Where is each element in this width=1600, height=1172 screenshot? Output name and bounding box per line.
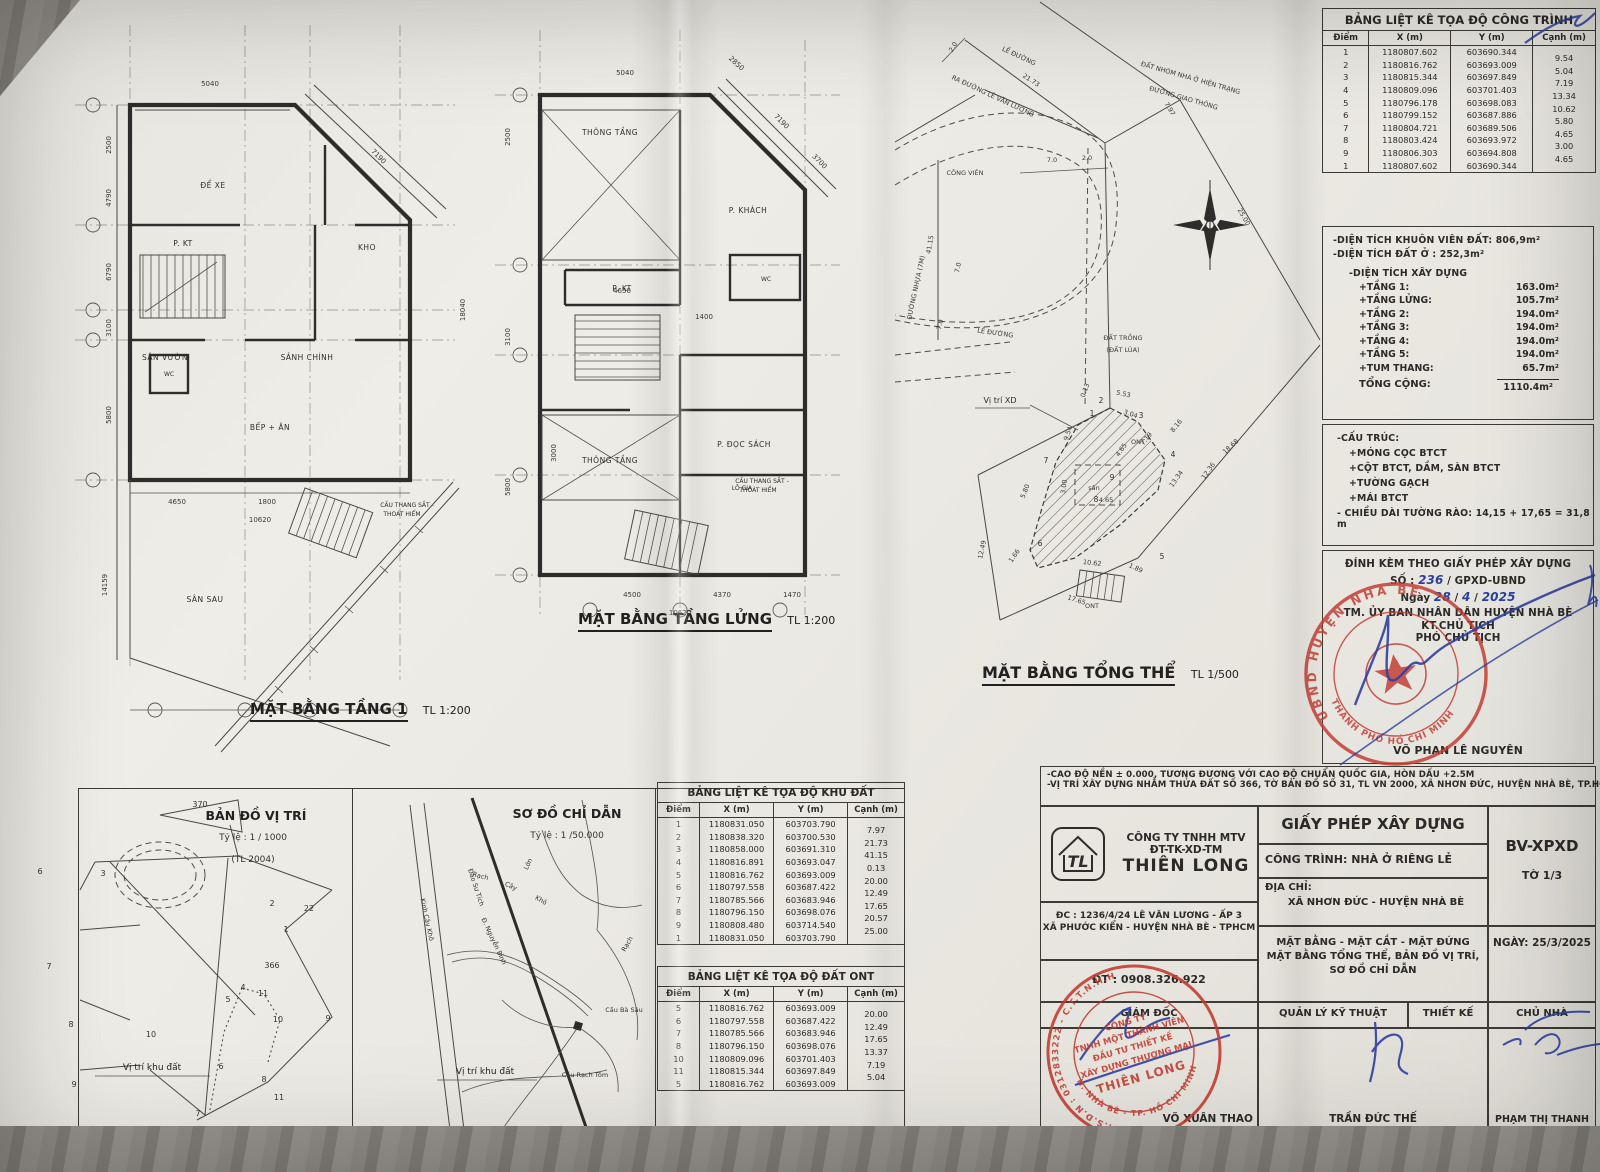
dim-label: 13.34	[1168, 469, 1185, 489]
structure-line: +CỘT BTCT, DẦM, SÀN BTCT	[1349, 463, 1593, 474]
room-label: KHO	[358, 243, 376, 252]
dim-label: 2850	[727, 55, 746, 73]
parcel-number: 10	[146, 1030, 156, 1039]
khudat-table: ĐiểmX (m)Y (m)Cạnh (m)11180831.050603703…	[657, 802, 905, 945]
column-header: Cạnh (m)	[848, 987, 905, 1002]
stair-note: THOÁT HIỂM	[382, 510, 420, 518]
director-role-cell: GIÁM ĐỐC	[1040, 1002, 1258, 1028]
company-address-cell: ĐC : 1236/4/24 LÊ VĂN LƯƠNG - ẤP 3 XÃ PH…	[1040, 902, 1258, 960]
plan-title-text: MẶT BẰNG TẦNG LỬNG	[578, 610, 772, 632]
dim-label: 41.15	[924, 235, 935, 255]
plan-title-text: MẶT BẰNG TẦNG 1	[250, 700, 408, 722]
dim-label: 1800	[258, 498, 276, 506]
parcel-number: 7	[195, 1109, 200, 1118]
road-name: Lớn	[522, 857, 534, 871]
parcel-number: 3	[100, 869, 105, 878]
map-scale: Tỷ lệ : 1 / 1000	[218, 832, 287, 843]
room-label: SẢNH CHÍNH	[281, 353, 334, 362]
signer-name: PHẠM THỊ THANH	[1489, 1114, 1595, 1125]
company-logo: TL	[1049, 825, 1107, 883]
map-title: BẢN ĐỒ VỊ TRÍ	[206, 806, 307, 823]
dim-label: 21.73	[1021, 72, 1041, 89]
plan-scale: TL 1/500	[1191, 668, 1239, 681]
axis-bubbles	[86, 98, 407, 717]
parcel-number: 11	[258, 989, 268, 998]
grid-lines	[495, 30, 840, 615]
parcel-number: 4	[240, 983, 245, 992]
column-header: Cạnh (m)	[1533, 31, 1596, 46]
site-label: ĐƯỜNG GIAO THÔNG	[1148, 84, 1219, 112]
area-item: +TẦNG 1:163.0m²	[1359, 282, 1593, 293]
column-header: Cạnh (m)	[848, 803, 905, 818]
structure-line: +MÓNG CỌC BTCT	[1349, 448, 1593, 459]
road-name: Cây	[504, 880, 519, 893]
structure-line: +MÁI BTCT	[1349, 493, 1593, 504]
column-header: Điểm	[658, 987, 700, 1002]
permit-line: KT.CHỦ TỊCH	[1323, 620, 1593, 632]
room-label: P. KHÁCH	[729, 206, 768, 215]
map-label: Vị trí khu đất	[123, 1062, 182, 1073]
area-line: -DIỆN TÍCH KHUÔN VIÊN ĐẤT: 806,9m²	[1333, 235, 1593, 246]
parcel-number: 9	[71, 1080, 76, 1089]
signer-name: TRẦN ĐỨC THẾ	[1259, 1113, 1487, 1125]
stair-note: CẦU THANG SẮT -	[735, 477, 789, 485]
dim-label: 7.0	[953, 262, 963, 274]
road-name: Kinh Cây Khô	[419, 898, 436, 942]
point-number: 8	[1094, 495, 1099, 504]
structure-line: +TƯỜNG GẠCH	[1349, 478, 1593, 489]
column-header: Điểm	[1323, 31, 1369, 46]
address-cell: ĐỊA CHỈ: XÃ NHƠN ĐỨC - HUYỆN NHÀ BÈ	[1258, 878, 1488, 926]
area-item: +TẦNG 4:194.0m²	[1359, 336, 1593, 347]
table-row: 51180816.762603693.00920.00	[658, 1002, 905, 1015]
parcel-number: 10	[273, 1015, 283, 1024]
map-note: (TL 2004)	[231, 855, 274, 865]
walls	[130, 85, 446, 558]
area-line: -DIỆN TÍCH ĐẤT Ở : 252,3m²	[1333, 249, 1593, 260]
dim-label: 7.0	[1047, 156, 1057, 164]
company-address: XÃ PHƯỚC KIỂN - HUYỆN NHÀ BÈ - TPHCM	[1041, 923, 1257, 933]
dim-label: 5040	[616, 69, 634, 77]
point-number: 2	[1099, 396, 1104, 405]
site-label: LỀ ĐƯỜNG	[977, 325, 1014, 340]
dim-label: 1470	[783, 591, 801, 599]
dim-label: 1.89	[1128, 562, 1145, 575]
ont-table-panel: BẢNG LIỆT KÊ TỌA ĐỘ ĐẤT ONT ĐiểmX (m)Y (…	[657, 966, 905, 1091]
company-name-line: CÔNG TY TNHH MTV	[1115, 832, 1257, 844]
dim-label: 3700	[810, 152, 828, 170]
site-label: ĐẤT TRỒNG	[1103, 332, 1142, 342]
room-label: THÔNG TẦNG	[581, 127, 638, 137]
column-header: X (m)	[1369, 31, 1451, 46]
permit-attachment-panel: ĐÍNH KÈM THEO GIẤY PHÉP XÂY DỰNG SỐ : 23…	[1322, 550, 1594, 764]
dim-label: 12.36	[1200, 461, 1217, 481]
dim-label: 4370	[713, 591, 731, 599]
site-label: ONT	[1085, 602, 1099, 610]
site-plan-drawing: LỀ ĐƯỜNG RA ĐƯỜNG LÊ VĂN LƯƠNG CÔNG VIÊN…	[880, 10, 1330, 655]
dim-label: 12.49	[976, 540, 988, 560]
sheet-number: TỜ 1/3	[1489, 869, 1595, 882]
parcel-number: 1	[283, 925, 288, 934]
date-cell: NGÀY: 25/3/2025	[1488, 926, 1596, 1002]
dim-label: 4790	[105, 189, 113, 207]
khudat-table-panel: BẢNG LIỆT KÊ TỌA ĐỘ KHU ĐẤT ĐiểmX (m)Y (…	[657, 782, 905, 945]
road-name: Rạch	[620, 935, 635, 953]
parcel-number: 22	[304, 904, 314, 913]
permit-line: PHÓ CHỦ TỊCH	[1323, 632, 1593, 644]
dim-label: 5040	[201, 80, 219, 88]
area-item: +TẦNG 2:194.0m²	[1359, 309, 1593, 320]
company-phone-cell: ĐT : 0908.326.922	[1040, 960, 1258, 1002]
plan-scale: TL 1:200	[787, 614, 835, 627]
walls	[540, 79, 836, 575]
owner-role-cell: CHỦ NHÀ	[1488, 1002, 1596, 1028]
site-label: sân	[1088, 484, 1100, 492]
table-title: BẢNG LIỆT KÊ TỌA ĐỘ ĐẤT ONT	[657, 966, 905, 986]
area-header: -DIỆN TÍCH XÂY DỰNG	[1349, 268, 1593, 279]
floor-strip	[0, 1126, 1600, 1172]
dim-label: 6790	[105, 263, 113, 281]
point-number: 1	[1090, 409, 1095, 418]
plan-scale: TL 1:200	[423, 704, 471, 717]
dim-label: 2.0	[1082, 154, 1092, 162]
site-label: CÔNG VIÊN	[947, 168, 984, 177]
dim-label: 5.80	[1019, 483, 1032, 499]
areas-panel: -DIỆN TÍCH KHUÔN VIÊN ĐẤT: 806,9m² -DIỆN…	[1322, 226, 1594, 420]
structure-panel: -CẤU TRÚC: +MÓNG CỌC BTCT +CỘT BTCT, DẦM…	[1322, 424, 1594, 546]
dim-label: 10620	[249, 516, 271, 524]
dim-label: 10.62	[1083, 558, 1102, 568]
location-map: BẢN ĐỒ VỊ TRÍ Tỷ lệ : 1 / 1000 (TL 2004)…	[0, 770, 348, 1132]
stair-note: CẦU THANG SẮT -	[380, 501, 434, 509]
company-brand: THIÊN LONG	[1115, 856, 1257, 876]
dim-label: 5.53	[1116, 389, 1132, 400]
congtrinh-table-panel: BẢNG LIỆT KÊ TỌA ĐỘ CÔNG TRÌNH ĐiểmX (m)…	[1322, 8, 1596, 173]
handwritten-number: 4	[1462, 590, 1470, 604]
area-item: +TẦNG 5:194.0m²	[1359, 349, 1593, 360]
dim-label: 3100	[504, 328, 512, 346]
floor1-plan-drawing: 5040 7190 4650 1800 10620 14159 2500 479…	[55, 10, 475, 750]
map-title: SƠ ĐỒ CHỈ DẪN	[513, 804, 622, 821]
stair-note: THOÁT HIỂM	[738, 486, 776, 494]
map-titles: SƠ ĐỒ CHỈ DẪN Tỷ lệ : 1 /50.000 Vị trí k…	[456, 804, 622, 1077]
parcel-number: 7	[46, 962, 51, 971]
signer-name: VÕ XUÂN THAO	[1041, 1113, 1253, 1125]
tech-manager-role-cell: QUẢN LÝ KỸ THUẬT	[1258, 1002, 1408, 1028]
room-label: BẾP + ĂN	[250, 422, 290, 432]
column-header: Y (m)	[774, 987, 848, 1002]
company-cell: TL CÔNG TY TNHH MTV ĐT-TK-XD-TM THIÊN LO…	[1040, 806, 1258, 902]
parcel-number: 366	[264, 961, 279, 970]
map-lines	[80, 800, 332, 1120]
floor1-plan-title: MẶT BẰNG TẦNG 1 TL 1:200	[250, 700, 471, 718]
room-label: WC	[761, 276, 771, 283]
room-labels: THÔNG TẦNG P. KHÁCH P. KT WC THÔNG TẦNG …	[581, 127, 789, 494]
signer-name: VÕ PHAN LÊ NGUYÊN	[1323, 744, 1593, 757]
area-total: TỔNG CỘNG: 1110.4m²	[1359, 379, 1593, 393]
handwritten-number: 236	[1418, 573, 1443, 587]
project-cell: CÔNG TRÌNH: NHÀ Ở RIÊNG LẺ	[1258, 844, 1488, 878]
sheet-code: BV-XPXD	[1489, 837, 1595, 855]
logo-monogram: TL	[1067, 852, 1088, 871]
room-label: P. ĐỌC SÁCH	[717, 440, 771, 449]
map-scale: Tỷ lệ : 1 /50.000	[529, 830, 604, 841]
dimension-labels: 5040 2850 7190 3700 4650 1400 3000 2500 …	[504, 55, 829, 617]
area-item: +TUM THANG:65.7m²	[1359, 363, 1593, 374]
axis-bubbles	[513, 88, 787, 617]
parcel-number: 2	[269, 899, 274, 908]
dim-label: 8.16	[1169, 418, 1184, 434]
dim-label: 2500	[504, 128, 512, 146]
area-item: +TẦNG 3:194.0m²	[1359, 322, 1593, 333]
north-compass	[1173, 180, 1247, 270]
handwritten-number: 28	[1434, 590, 1451, 604]
dim-label: 14159	[101, 574, 109, 596]
dim-label: 3000	[550, 444, 558, 462]
tech-signature-cell: TRẦN ĐỨC THẾ	[1258, 1028, 1488, 1132]
note-line: -CAO ĐỘ NỀN ± 0.000, TƯƠNG ĐƯƠNG VỚI CAO…	[1047, 770, 1595, 780]
parcel-number: 8	[261, 1075, 266, 1084]
note-line: -VỊ TRÍ XÂY DỰNG NHẰM THỬA ĐẤT SỐ 366, T…	[1047, 780, 1595, 790]
structure-line: -CẤU TRÚC:	[1337, 433, 1593, 444]
dim-label: 4.65	[1099, 496, 1113, 504]
site-label: Vị trí XD	[983, 396, 1016, 406]
site-label: ĐƯỜNG NHỰA (7M)	[904, 255, 926, 321]
point-number: 5	[1160, 552, 1165, 561]
owner-signature-cell: PHẠM THỊ THANH	[1488, 1028, 1596, 1132]
parcel-boundary	[965, 2, 1320, 620]
company-address: ĐC : 1236/4/24 LÊ VĂN LƯƠNG - ẤP 3	[1041, 911, 1257, 921]
column-header: Y (m)	[1451, 31, 1533, 46]
mezzanine-plan-drawing: 5040 2850 7190 3700 4650 1400 3000 2500 …	[480, 15, 850, 625]
designer-role-cell: THIẾT KẾ	[1408, 1002, 1488, 1028]
drawing-content-cell: MẶT BẰNG - MẶT CẮT - MẶT ĐỨNG MẶT BẰNG T…	[1258, 926, 1488, 1002]
parcel-number: 370	[192, 800, 207, 809]
congtrinh-table: ĐiểmX (m)Y (m)Cạnh (m)11180807.602603690…	[1322, 30, 1596, 173]
permit-date-line: Ngày 28 / 4 / 2025	[1323, 590, 1593, 604]
area-item: +TẦNG LỬNG:105.7m²	[1359, 295, 1593, 306]
site-label: (ĐẤT LÚA)	[1106, 344, 1139, 354]
road-name: Cầu Rạch Tôm	[562, 1071, 608, 1079]
ont-table: ĐiểmX (m)Y (m)Cạnh (m)51180816.762603693…	[657, 986, 905, 1091]
table-row: 11180831.050603703.7907.97	[658, 818, 905, 831]
sheet-code-cell: BV-XPXD TỜ 1/3	[1488, 806, 1596, 926]
permit-title-cell: GIẤY PHÉP XÂY DỰNG	[1258, 806, 1488, 844]
room-label: SÂN SAU	[186, 595, 223, 604]
point-number: 6	[1038, 539, 1043, 548]
table-row: 11180807.602603690.3449.54	[1323, 46, 1596, 59]
date-value: NGÀY: 25/3/2025	[1493, 937, 1591, 949]
dim-label: 2.0	[947, 41, 959, 54]
parcel-number: 11	[274, 1093, 284, 1102]
mezzanine-plan-title: MẶT BẰNG TẦNG LỬNG TL 1:200	[578, 610, 835, 628]
column-header: Y (m)	[774, 803, 848, 818]
permit-number-line: SỐ : 236 / GPXD-UBND	[1323, 573, 1593, 587]
dim-label: 1.66	[1007, 548, 1022, 564]
parcel-number: 9	[325, 1014, 330, 1023]
point-number: 4	[1171, 450, 1176, 459]
room-label: THÔNG TẦNG	[581, 455, 638, 465]
point-number: 9	[1110, 473, 1115, 482]
map-label: Vị trí khu đất	[456, 1066, 515, 1077]
road-name: Cầu Bà Sáu	[605, 1006, 642, 1014]
column-header: X (m)	[699, 803, 773, 818]
room-label: SÂN VƯỜN	[142, 353, 188, 362]
company-name-line: ĐT-TK-XD-TM	[1115, 844, 1257, 856]
room-label: WC	[164, 371, 174, 378]
roads	[895, 38, 1117, 408]
dim-label: 3100	[105, 319, 113, 337]
dim-label: 2500	[105, 136, 113, 154]
column-header: Điểm	[658, 803, 700, 818]
parcel-number: 5	[225, 995, 230, 1004]
plan-title-text: MẶT BẰNG TỔNG THỂ	[982, 663, 1175, 686]
scanned-permit-drawing-sheet: 5040 7190 4650 1800 10620 14159 2500 479…	[0, 0, 1600, 1172]
map-lines	[410, 798, 642, 1130]
permit-line: ĐÍNH KÈM THEO GIẤY PHÉP XÂY DỰNG	[1323, 558, 1593, 570]
title-block: TL CÔNG TY TNHH MTV ĐT-TK-XD-TM THIÊN LO…	[1040, 806, 1596, 1132]
dim-label: 18.68	[1221, 437, 1240, 455]
permit-line: TM. ỦY BAN NHÂN DÂN HUYỆN NHÀ BÈ	[1323, 607, 1593, 619]
road-name: Khô	[534, 894, 549, 907]
site-plan-title: MẶT BẰNG TỔNG THỂ TL 1/500	[982, 663, 1239, 682]
dim-label: 18040	[459, 299, 467, 321]
dim-label: 5800	[504, 478, 512, 496]
room-label: P. KT	[173, 239, 193, 248]
dim-label: 0.13	[1079, 382, 1091, 398]
point-number: 7	[1044, 456, 1049, 465]
table-title: BẢNG LIỆT KÊ TỌA ĐỘ KHU ĐẤT	[657, 782, 905, 802]
general-notes: -CAO ĐỘ NỀN ± 0.000, TƯƠNG ĐƯƠNG VỚI CAO…	[1040, 766, 1596, 806]
guide-map: SƠ ĐỒ CHỈ DẪN Tỷ lệ : 1 /50.000 Vị trí k…	[352, 770, 658, 1132]
parcel-number: 8	[68, 1020, 73, 1029]
company-phone: ĐT : 0908.326.922	[1092, 973, 1206, 986]
parcel-number: 6	[218, 1062, 223, 1071]
dim-label: 4650	[168, 498, 186, 506]
point-number: 3	[1139, 411, 1144, 420]
dim-label: 7.0	[935, 319, 945, 331]
column-header: X (m)	[699, 987, 773, 1002]
table-title: BẢNG LIỆT KÊ TỌA ĐỘ CÔNG TRÌNH	[1322, 8, 1596, 30]
structure-line: - CHIỀU DÀI TƯỜNG RÀO: 14,15 + 17,65 = 3…	[1337, 508, 1593, 530]
dim-label: 4500	[623, 591, 641, 599]
dim-label: 5800	[105, 406, 113, 424]
room-label: P. KT	[612, 284, 632, 293]
parcel-number: 6	[37, 867, 42, 876]
site-label: LỀ ĐƯỜNG	[1001, 43, 1038, 67]
room-label: ĐỂ XE	[200, 180, 225, 190]
handwritten-number: 2025	[1482, 590, 1516, 604]
director-signature-cell: VÕ XUÂN THAO	[1040, 1028, 1258, 1132]
dim-label: 1400	[695, 313, 713, 321]
